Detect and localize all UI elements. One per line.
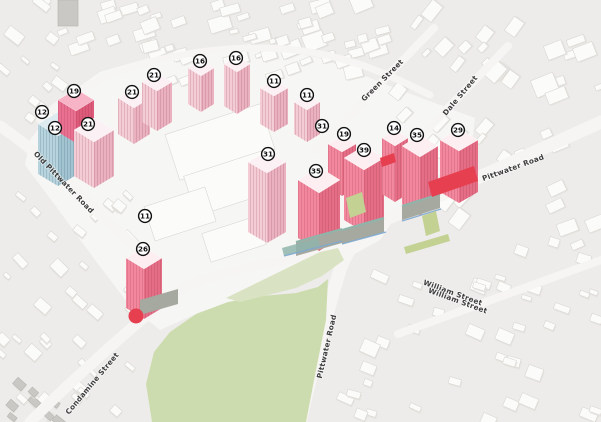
height-marker-14: 14 [388,122,401,135]
height-marker-label: 19 [69,87,79,96]
height-marker-29: 29 [452,124,465,137]
height-marker-label: 35 [412,131,422,140]
height-marker-31: 31 [316,120,329,133]
height-marker-39: 39 [358,144,371,157]
height-marker-label: 29 [453,126,463,135]
height-marker-label: 14 [389,124,399,133]
height-marker-label: 39 [359,146,369,155]
height-marker-label: 12 [37,108,47,117]
height-marker-31: 31 [262,148,275,161]
height-marker-label: 31 [317,122,327,131]
height-marker-label: 16 [231,54,241,63]
tower-pale-2 [74,118,114,188]
height-marker-label: 21 [149,71,159,80]
height-marker-label: 26 [138,245,148,254]
height-marker-11: 11 [301,89,314,102]
height-marker-35: 35 [310,165,323,178]
height-marker-label: 21 [83,120,93,129]
height-marker-label: 11 [302,91,312,100]
tower-pale-4 [142,73,172,131]
height-marker-19: 19 [338,128,351,141]
height-marker-11: 11 [268,75,281,88]
red-podium-26 [129,309,144,324]
height-marker-12: 12 [49,122,62,135]
height-marker-label: 16 [195,57,205,66]
height-marker-11: 11 [139,210,152,223]
height-marker-21: 21 [148,69,161,82]
height-marker-19: 19 [68,85,81,98]
massing-map: Old Pittwater RoadGreen StreetDale Stree… [0,0,601,422]
height-marker-label: 35 [311,167,321,176]
height-marker-16: 16 [194,55,207,68]
height-marker-35: 35 [411,129,424,142]
height-marker-label: 12 [50,124,60,133]
height-marker-21: 21 [82,118,95,131]
height-marker-label: 21 [127,88,137,97]
height-marker-label: 11 [269,77,279,86]
height-marker-21: 21 [126,86,139,99]
height-marker-12: 12 [36,106,49,119]
height-marker-label: 11 [140,212,150,221]
height-marker-16: 16 [230,52,243,65]
tower-pale-9 [248,151,286,243]
height-marker-label: 19 [339,130,349,139]
height-marker-label: 31 [263,150,273,159]
map-canvas: Old Pittwater RoadGreen StreetDale Stree… [0,0,601,422]
height-marker-26: 26 [137,243,150,256]
